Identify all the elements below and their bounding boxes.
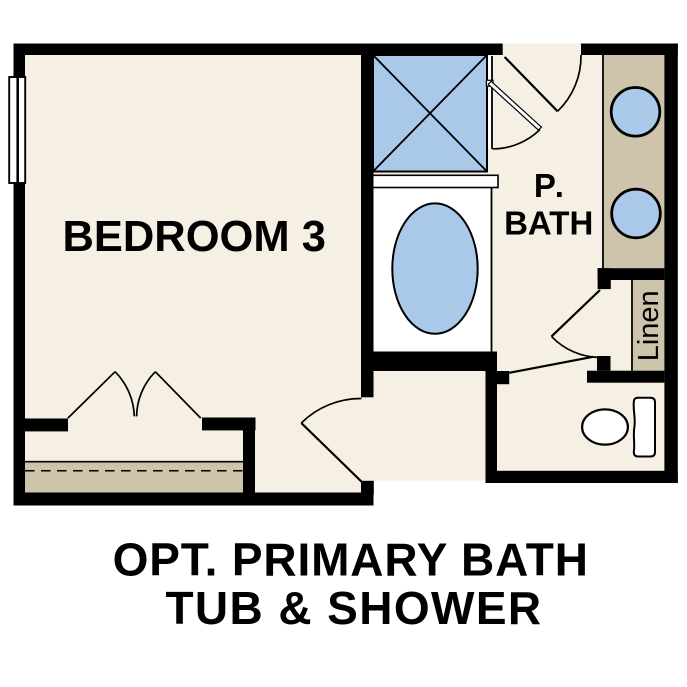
svg-text:TUB & SHOWER: TUB & SHOWER — [165, 582, 542, 634]
svg-text:P.: P. — [534, 167, 567, 204]
svg-text:BATH: BATH — [504, 205, 593, 242]
svg-text:Linen: Linen — [633, 290, 665, 361]
svg-text:BEDROOM 3: BEDROOM 3 — [62, 213, 325, 261]
svg-text:OPT. PRIMARY BATH: OPT. PRIMARY BATH — [113, 534, 589, 586]
